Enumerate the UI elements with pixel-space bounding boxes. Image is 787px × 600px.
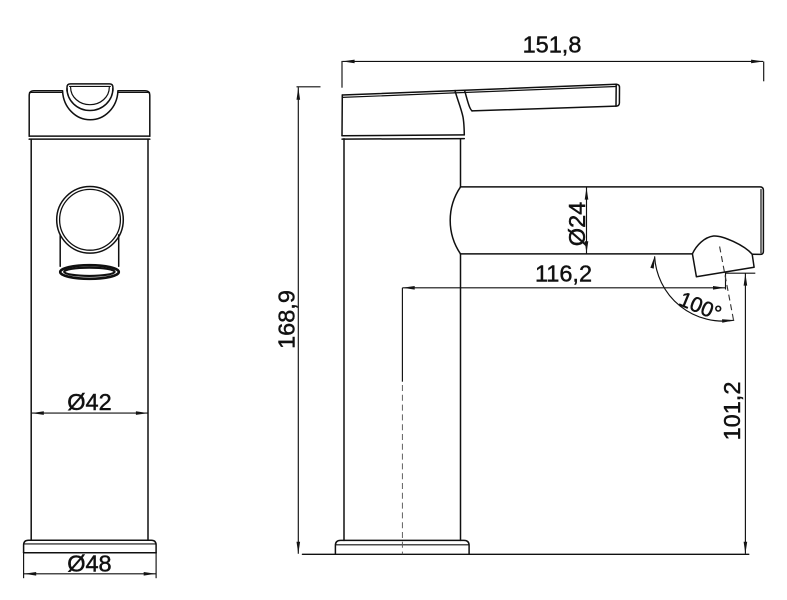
- svg-text:Ø48: Ø48: [67, 551, 111, 577]
- svg-text:151,8: 151,8: [523, 32, 582, 58]
- svg-text:101,2: 101,2: [719, 382, 745, 441]
- svg-text:116,2: 116,2: [535, 260, 592, 286]
- svg-text:168,9: 168,9: [273, 290, 299, 349]
- svg-text:Ø42: Ø42: [67, 389, 111, 415]
- svg-text:Ø24: Ø24: [564, 202, 590, 246]
